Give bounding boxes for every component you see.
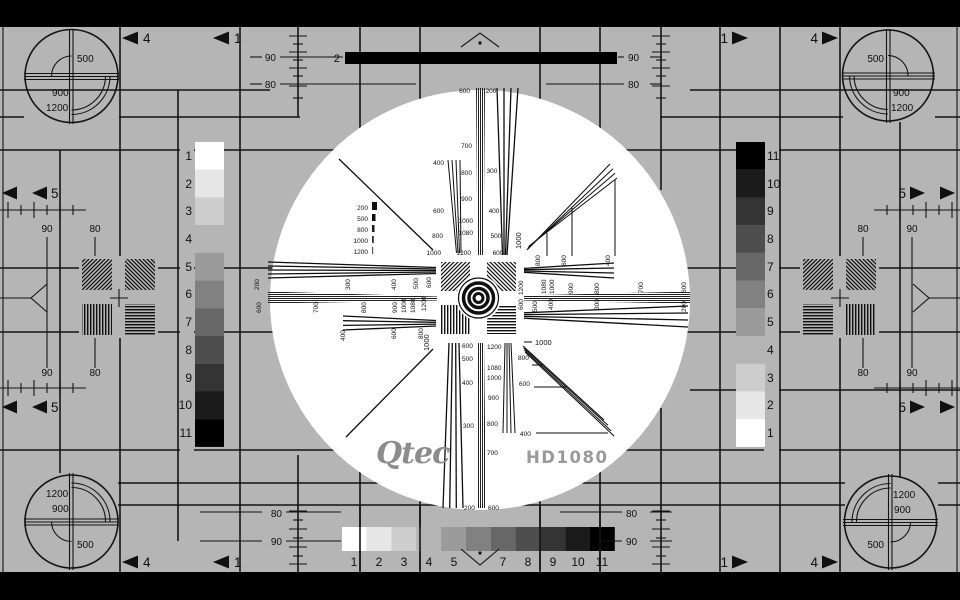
percent-label: 80	[89, 368, 101, 379]
freq-label: 700	[313, 302, 320, 313]
freq-label: 800	[594, 283, 601, 294]
freq-label: 400	[605, 255, 612, 266]
arrow-number: 1	[720, 555, 728, 570]
percent-label: 80	[628, 80, 640, 91]
freq-label: 1000	[459, 218, 474, 225]
freq-label: 600	[433, 208, 444, 215]
arrow-number: 4	[810, 31, 818, 46]
step-number: 6	[767, 287, 774, 301]
freq-label: 1200	[487, 344, 502, 351]
freq-label: 500	[491, 233, 502, 240]
freq-label: 1000	[422, 334, 431, 351]
freq-label: 900	[568, 283, 575, 294]
hatch-block-grid-right	[800, 256, 879, 338]
arrow-number: 4	[143, 555, 151, 570]
freq-label: 800	[487, 421, 498, 428]
step-number: 9	[550, 555, 557, 569]
corner-label: 500	[77, 54, 94, 65]
percent-label: 90	[265, 53, 277, 64]
corner-label: 1200	[46, 103, 69, 114]
step-number: 11	[767, 149, 780, 163]
freq-label: 400	[340, 330, 347, 341]
legend-label: 1000	[354, 238, 369, 245]
percent-label: 80	[89, 224, 101, 235]
step-number: 3	[767, 371, 774, 385]
step-number: 4	[767, 343, 774, 357]
corner-label: 1200	[893, 490, 916, 501]
step-number: 3	[185, 204, 192, 218]
percent-label: 90	[906, 224, 918, 235]
arrow-number: 5	[51, 186, 59, 201]
freq-label: 1080	[541, 279, 548, 294]
arrow-number: 5	[898, 186, 906, 201]
freq-label: 600	[462, 343, 473, 350]
step-number: 2	[767, 398, 774, 412]
percent-label: 90	[41, 224, 53, 235]
step-number: 4	[185, 232, 192, 246]
step-number: 6	[185, 287, 192, 301]
freq-label: 800	[432, 233, 443, 240]
corner-label: 1200	[46, 489, 69, 500]
legend-label: 200	[357, 205, 368, 212]
step-number: 7	[185, 315, 192, 329]
qtec-logo: Qtec	[376, 436, 450, 471]
freq-label: 300	[487, 168, 498, 175]
center-bullseye	[456, 276, 501, 321]
freq-label: 800	[518, 355, 529, 362]
legend-label: 1200	[354, 249, 369, 256]
freq-label: 400	[462, 380, 473, 387]
freq-label: 700	[461, 143, 472, 150]
arrow-number: 4	[810, 555, 818, 570]
freq-label: 1000	[427, 250, 442, 257]
freq-label: 1000	[535, 338, 552, 347]
freq-label: 300	[463, 423, 474, 430]
freq-label: 1200	[518, 280, 525, 295]
freq-label: 600	[256, 302, 263, 313]
freq-label: 200	[681, 301, 688, 312]
corner-label: 500	[867, 540, 884, 551]
percent-label: 90	[626, 537, 638, 548]
freq-label: 200	[464, 505, 475, 512]
step-number: 1	[351, 555, 358, 569]
freq-label: 400	[489, 208, 500, 215]
freq-label: 500	[532, 301, 539, 312]
percent-label: 90	[271, 537, 283, 548]
freq-label: 900	[392, 302, 399, 313]
freq-label: 600	[493, 250, 504, 257]
freq-label: 1000	[401, 298, 408, 313]
grayscale-staircase-right: 11 10 9 8 7 6 5 4 3 2 1	[736, 140, 781, 452]
freq-label: 900	[461, 196, 472, 203]
freq-label: 400	[548, 299, 555, 310]
percent-label: 80	[857, 224, 869, 235]
arrow-number: 1	[720, 31, 728, 46]
step-number: 10	[571, 555, 585, 569]
freq-label: 1000	[549, 279, 556, 294]
step-number: 7	[767, 260, 774, 274]
freq-label: 800	[461, 170, 472, 177]
freq-label: 1080	[410, 298, 417, 313]
step-number: 1	[185, 149, 192, 163]
test-pattern-screen: 500 900 1200 500 900 1200 1200 900 500 1…	[0, 0, 960, 600]
percent-label: 90	[628, 53, 640, 64]
freq-label: 700	[487, 450, 498, 457]
freq-label: 1080	[459, 230, 474, 237]
freq-label: 700	[638, 282, 645, 293]
step-number: 2	[376, 555, 383, 569]
freq-label: 600	[426, 277, 433, 288]
step-number: 9	[767, 204, 774, 218]
step-number: 11	[180, 426, 193, 440]
percent-label: 90	[41, 368, 53, 379]
freq-label: 600	[519, 381, 530, 388]
percent-label: 80	[626, 509, 638, 520]
step-number: 11	[596, 555, 609, 569]
freq-label: 400	[433, 160, 444, 167]
arrow-number: 1	[234, 555, 242, 570]
model-label: HD1080	[526, 448, 608, 467]
freq-label: 600	[459, 88, 470, 95]
corner-label: 900	[52, 88, 69, 99]
freq-label: 400	[391, 279, 398, 290]
step-number: 7	[500, 555, 507, 569]
step-number: 9	[185, 371, 192, 385]
freq-label: 1200	[421, 296, 428, 311]
step-number: 2	[185, 177, 192, 191]
hatch-block-grid-left	[79, 256, 158, 338]
freq-label: 600	[518, 299, 525, 310]
step-number: 5	[451, 555, 458, 569]
freq-label: 800	[535, 255, 542, 266]
freq-label: 500	[413, 278, 420, 289]
step-number: 8	[525, 555, 532, 569]
step-number: 5	[185, 260, 192, 274]
freq-label: 600	[561, 255, 568, 266]
step-number: 10	[179, 398, 193, 412]
freq-label: 900	[488, 395, 499, 402]
freq-label: 500	[462, 356, 473, 363]
corner-label: 900	[52, 504, 69, 515]
legend-label: 500	[357, 216, 368, 223]
percent-label: 80	[271, 509, 283, 520]
bar-number: 2	[334, 53, 340, 65]
freq-label: 600	[488, 505, 499, 512]
freq-label: 200	[254, 279, 261, 290]
freq-label: 400	[520, 431, 531, 438]
freq-label: 300	[345, 279, 352, 290]
arrow-number: 5	[898, 400, 906, 415]
freq-label: 1000	[487, 375, 502, 382]
freq-label: 200	[486, 88, 497, 95]
step-number: 8	[185, 343, 192, 357]
step-number: 1	[767, 426, 774, 440]
freq-label: 1080	[487, 365, 502, 372]
percent-label: 90	[906, 368, 918, 379]
step-number: 4	[426, 555, 433, 569]
arrow-number: 5	[51, 400, 59, 415]
legend-label: 800	[357, 227, 368, 234]
freq-label: 800	[361, 302, 368, 313]
freq-label: 300	[594, 299, 601, 310]
freq-label: 600	[681, 282, 688, 293]
percent-label: 80	[857, 368, 869, 379]
step-number: 10	[767, 177, 781, 191]
percent-label: 80	[265, 80, 277, 91]
corner-label: 900	[894, 505, 911, 516]
corner-label: 500	[867, 54, 884, 65]
arrow-number: 4	[143, 31, 151, 46]
step-number: 8	[767, 232, 774, 246]
black-level-bar	[345, 52, 617, 64]
step-number: 3	[401, 555, 408, 569]
freq-label: 600	[391, 328, 398, 339]
corner-label: 900	[893, 88, 910, 99]
corner-label: 500	[77, 540, 94, 551]
step-number: 5	[767, 315, 774, 329]
grayscale-staircase-left: 1 2 3 4 5 6 7 8 9 10 11	[179, 140, 224, 452]
arrow-number: 1	[234, 31, 242, 46]
qtec-hd1080-test-chart: 500 900 1200 500 900 1200 1200 900 500 1…	[0, 0, 960, 600]
freq-label: 1200	[457, 250, 472, 257]
freq-label: 1000	[514, 232, 523, 249]
corner-label: 1200	[891, 103, 914, 114]
